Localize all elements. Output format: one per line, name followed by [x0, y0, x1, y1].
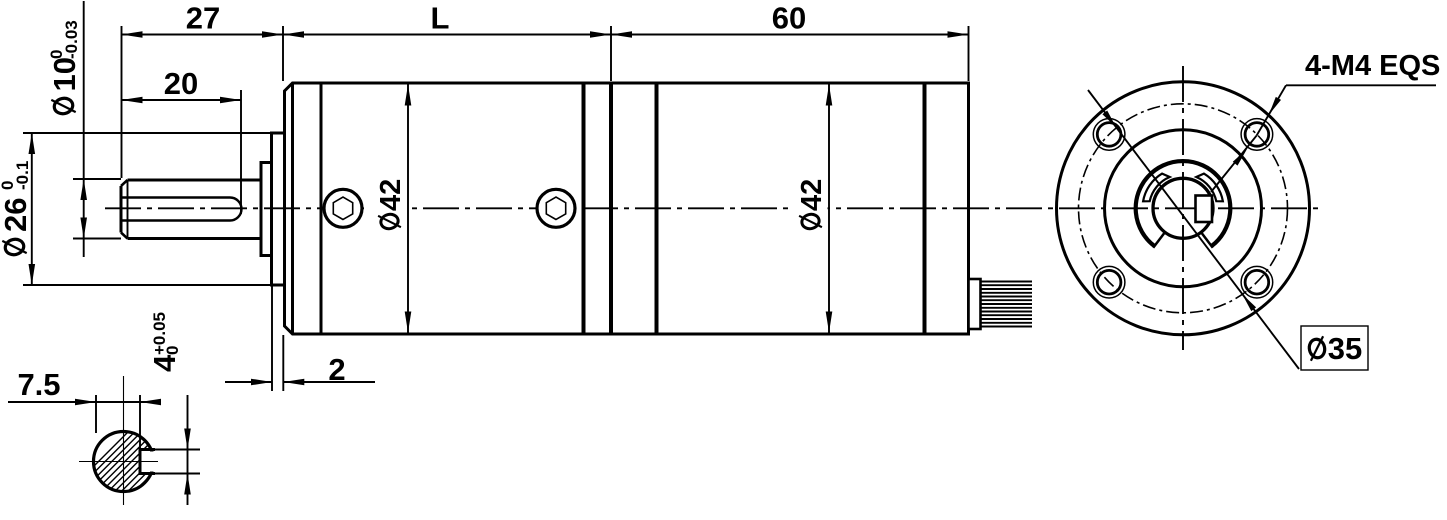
svg-text:4: 4: [147, 354, 182, 372]
svg-text:0: 0: [163, 346, 182, 355]
svg-text:60: 60: [772, 1, 806, 36]
svg-text:10: 10: [47, 57, 82, 91]
svg-text:4-M4 EQS: 4-M4 EQS: [1305, 50, 1440, 82]
svg-text:35: 35: [1328, 331, 1362, 366]
svg-text:42: 42: [375, 179, 407, 211]
svg-text:26: 26: [0, 198, 33, 232]
svg-text:L: L: [431, 1, 450, 36]
svg-text:20: 20: [164, 66, 198, 101]
svg-text:-0.1: -0.1: [13, 161, 32, 190]
svg-text:27: 27: [186, 1, 220, 36]
svg-text:7.5: 7.5: [17, 367, 60, 402]
svg-text:2: 2: [328, 352, 345, 387]
svg-text:-0.03: -0.03: [62, 20, 81, 59]
svg-text:42: 42: [796, 179, 828, 211]
